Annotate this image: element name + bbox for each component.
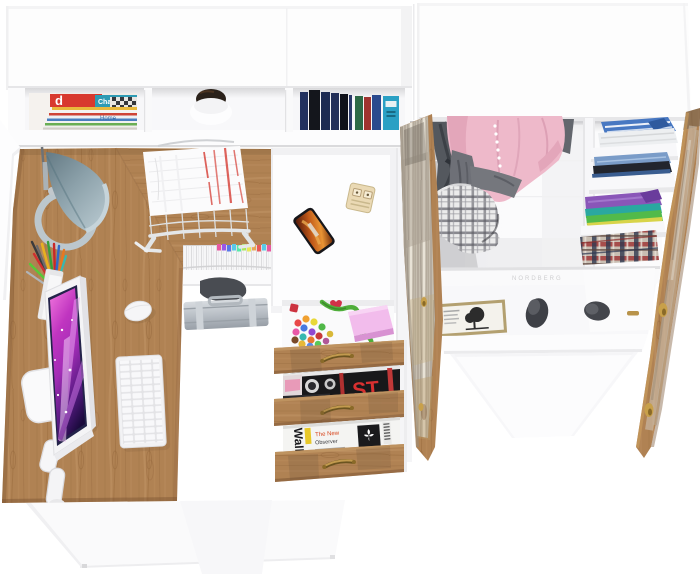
svg-text:Cha: Cha bbox=[98, 99, 111, 106]
svg-text:Home: Home bbox=[100, 116, 117, 122]
svg-text:d: d bbox=[55, 93, 63, 108]
svg-text:NORDBERG: NORDBERG bbox=[512, 276, 563, 282]
svg-text:Wall: Wall bbox=[291, 427, 306, 452]
